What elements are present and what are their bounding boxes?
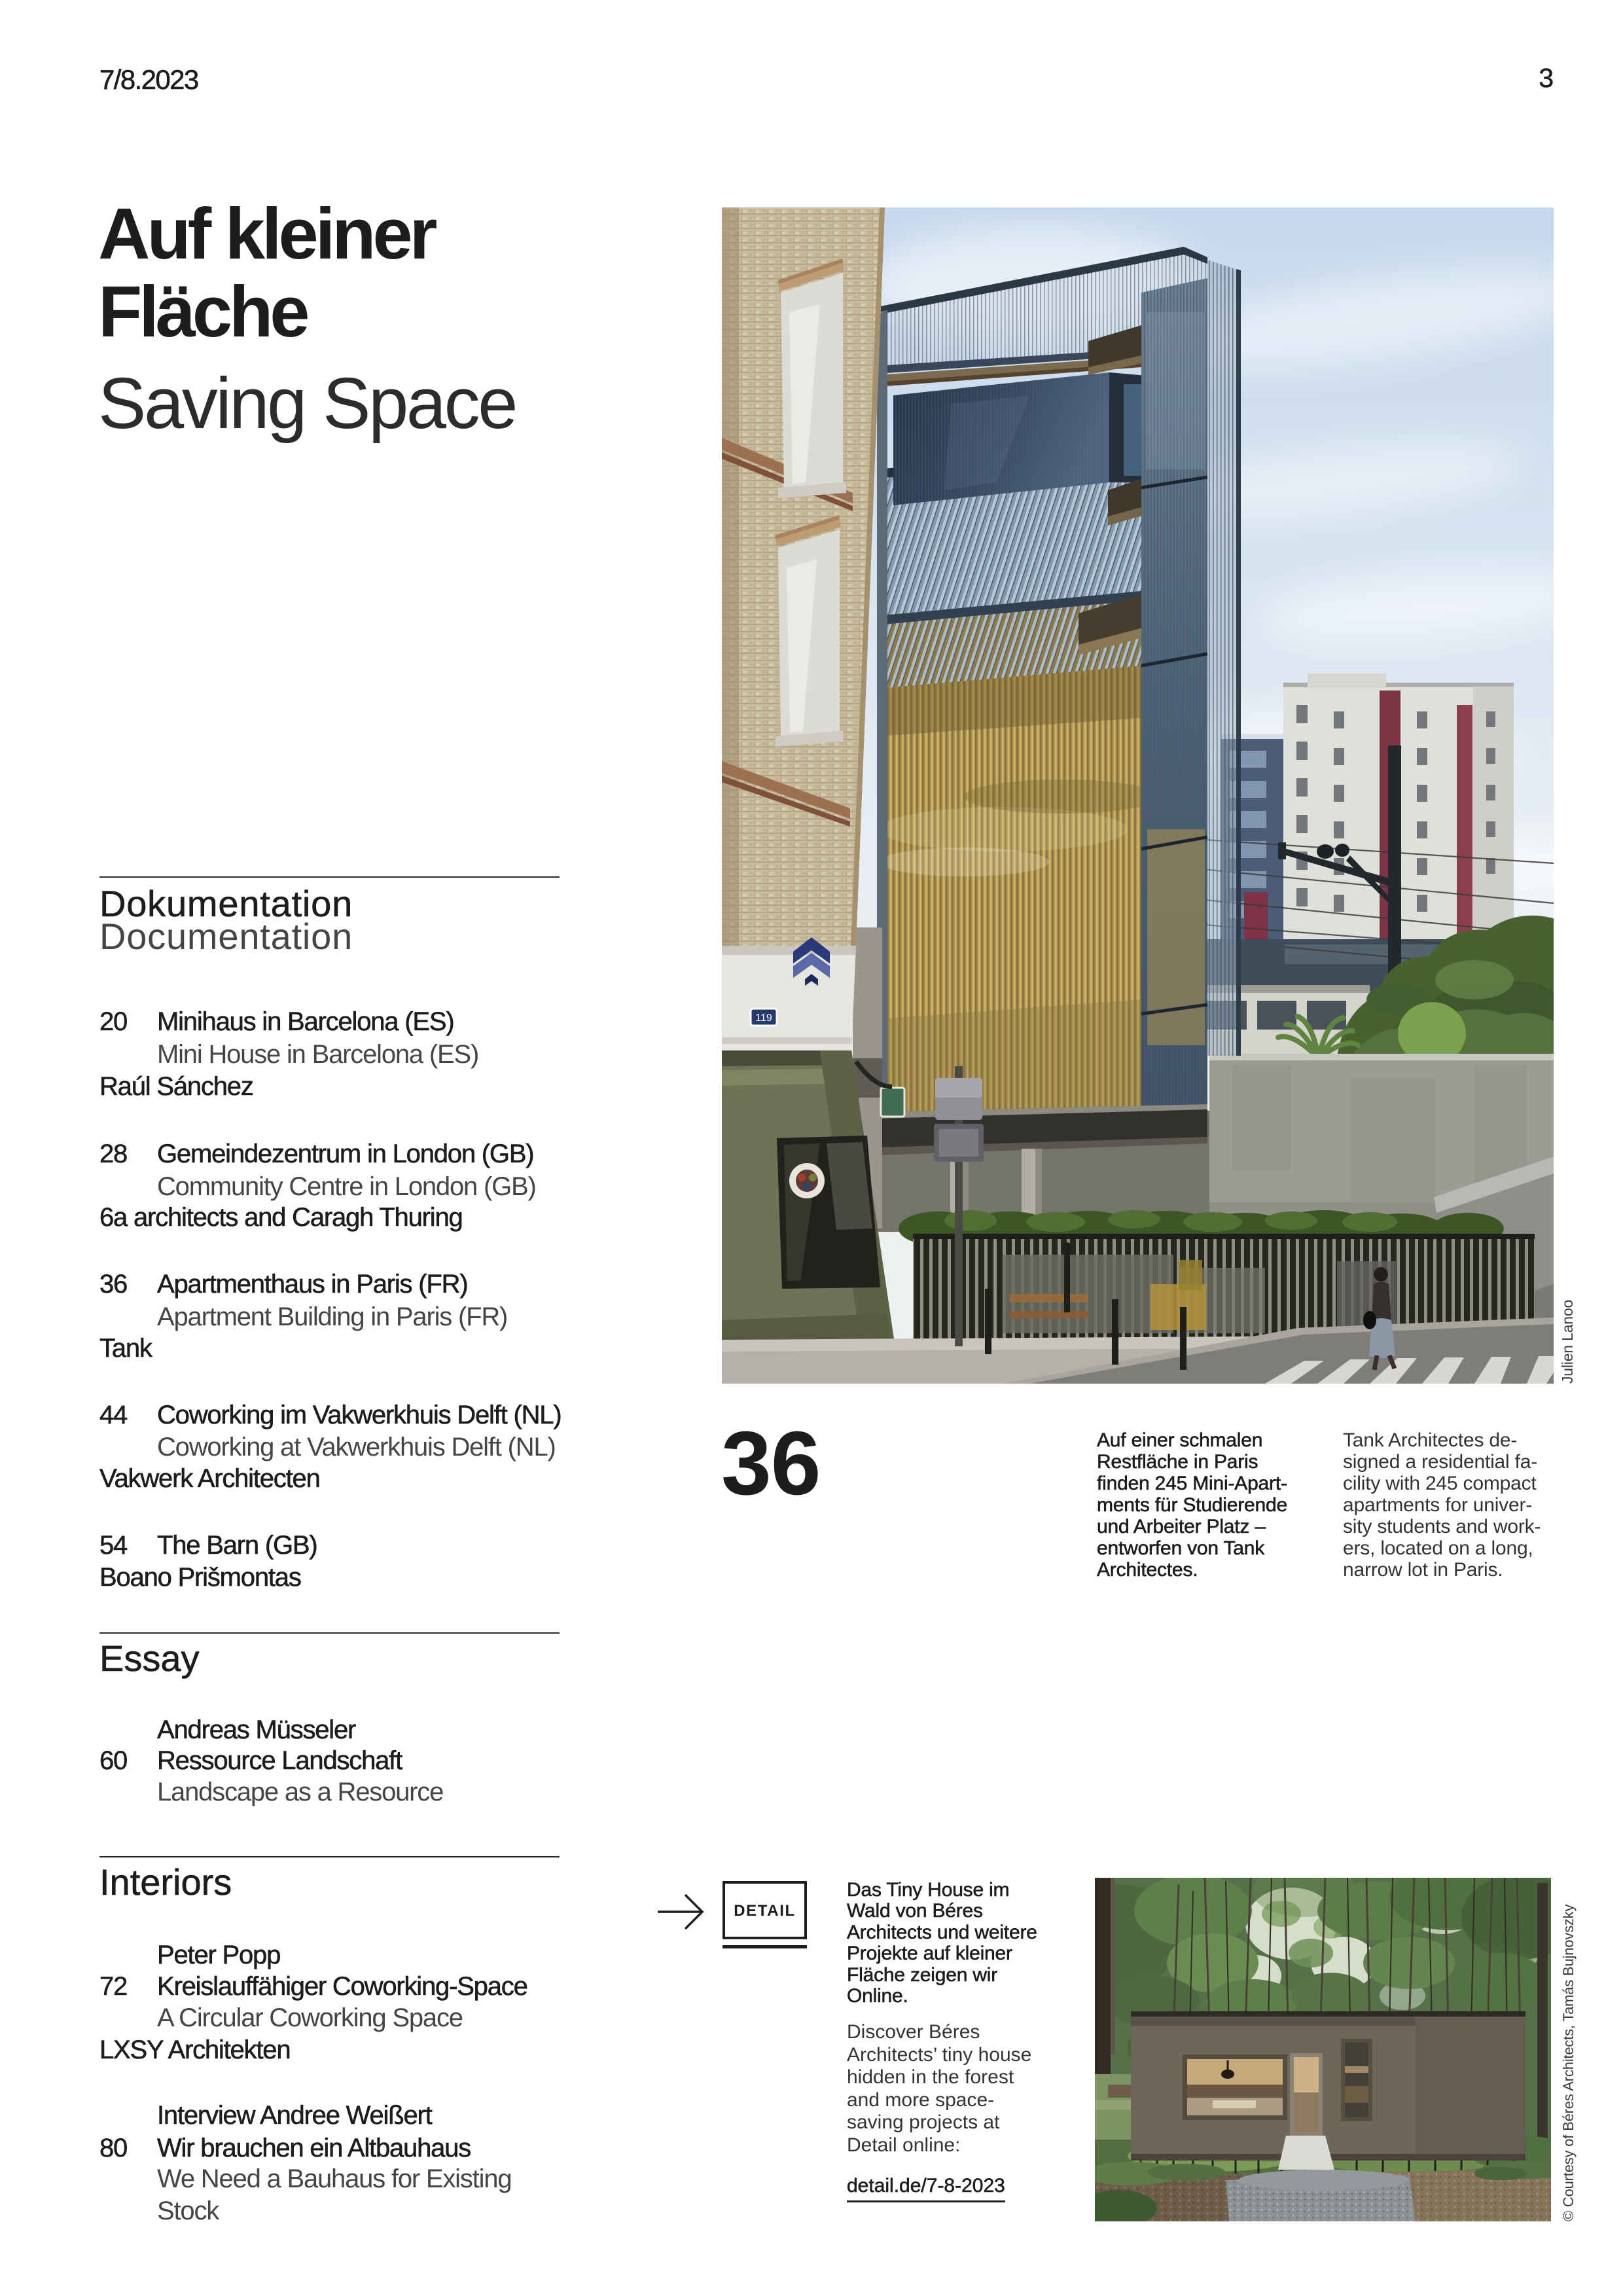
svg-text:119: 119 xyxy=(755,1013,772,1024)
